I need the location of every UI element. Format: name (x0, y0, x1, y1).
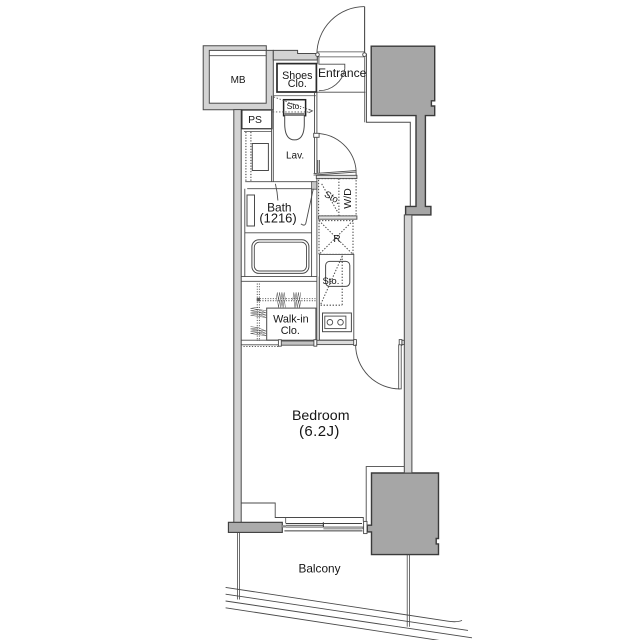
svg-text:(6.2J): (6.2J) (299, 423, 340, 440)
svg-text:Walk-in: Walk-in (273, 313, 309, 325)
svg-text:Entrance: Entrance (318, 66, 367, 80)
svg-text:PS: PS (248, 115, 262, 126)
svg-text:Sto.: Sto. (322, 276, 339, 287)
svg-text:W/D: W/D (342, 188, 354, 209)
svg-text:R: R (333, 234, 340, 245)
svg-text:(1216): (1216) (259, 211, 296, 226)
svg-text:Bedroom: Bedroom (292, 408, 350, 424)
svg-text:Balcony: Balcony (299, 561, 341, 575)
svg-text:Clo.: Clo. (288, 78, 307, 90)
svg-text:Clo.: Clo. (281, 325, 300, 337)
svg-text:MB: MB (231, 75, 246, 86)
svg-text:Lav.: Lav. (286, 151, 304, 162)
